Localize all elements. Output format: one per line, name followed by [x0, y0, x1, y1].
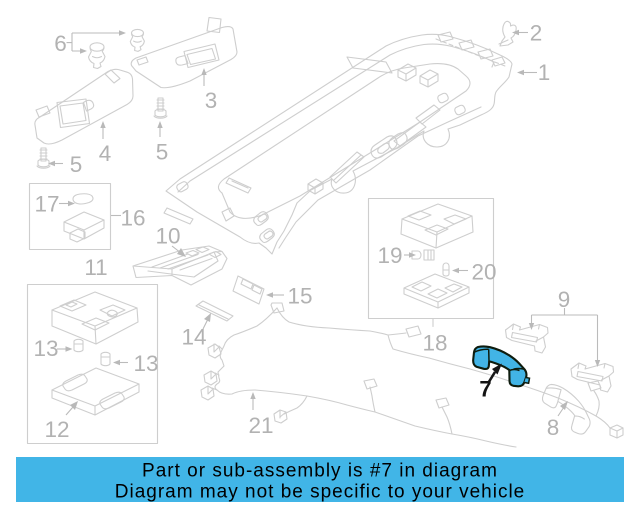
svg-text:1: 1: [538, 60, 551, 85]
svg-text:4: 4: [99, 141, 112, 166]
svg-text:9: 9: [558, 287, 571, 312]
svg-text:17: 17: [34, 192, 59, 217]
svg-text:13: 13: [133, 351, 158, 376]
svg-text:20: 20: [471, 260, 496, 285]
svg-text:5: 5: [70, 152, 83, 177]
svg-text:16: 16: [120, 206, 145, 231]
svg-text:7: 7: [479, 377, 491, 402]
svg-text:10: 10: [155, 224, 180, 249]
svg-text:8: 8: [547, 415, 560, 440]
svg-text:6: 6: [54, 31, 67, 56]
svg-text:2: 2: [530, 21, 543, 46]
svg-text:21: 21: [248, 413, 273, 438]
svg-text:Diagram may not be specific to: Diagram may not be specific to your vehi…: [115, 482, 526, 503]
svg-text:3: 3: [205, 88, 218, 113]
svg-text:Part or sub-assembly is #7 in: Part or sub-assembly is #7 in diagram: [142, 461, 498, 482]
svg-text:19: 19: [377, 243, 402, 268]
svg-text:14: 14: [181, 325, 206, 350]
svg-text:12: 12: [44, 417, 69, 442]
svg-text:15: 15: [287, 284, 312, 309]
svg-text:5: 5: [156, 140, 169, 165]
svg-text:13: 13: [33, 336, 58, 361]
svg-text:18: 18: [422, 331, 447, 356]
svg-text:11: 11: [84, 255, 107, 280]
